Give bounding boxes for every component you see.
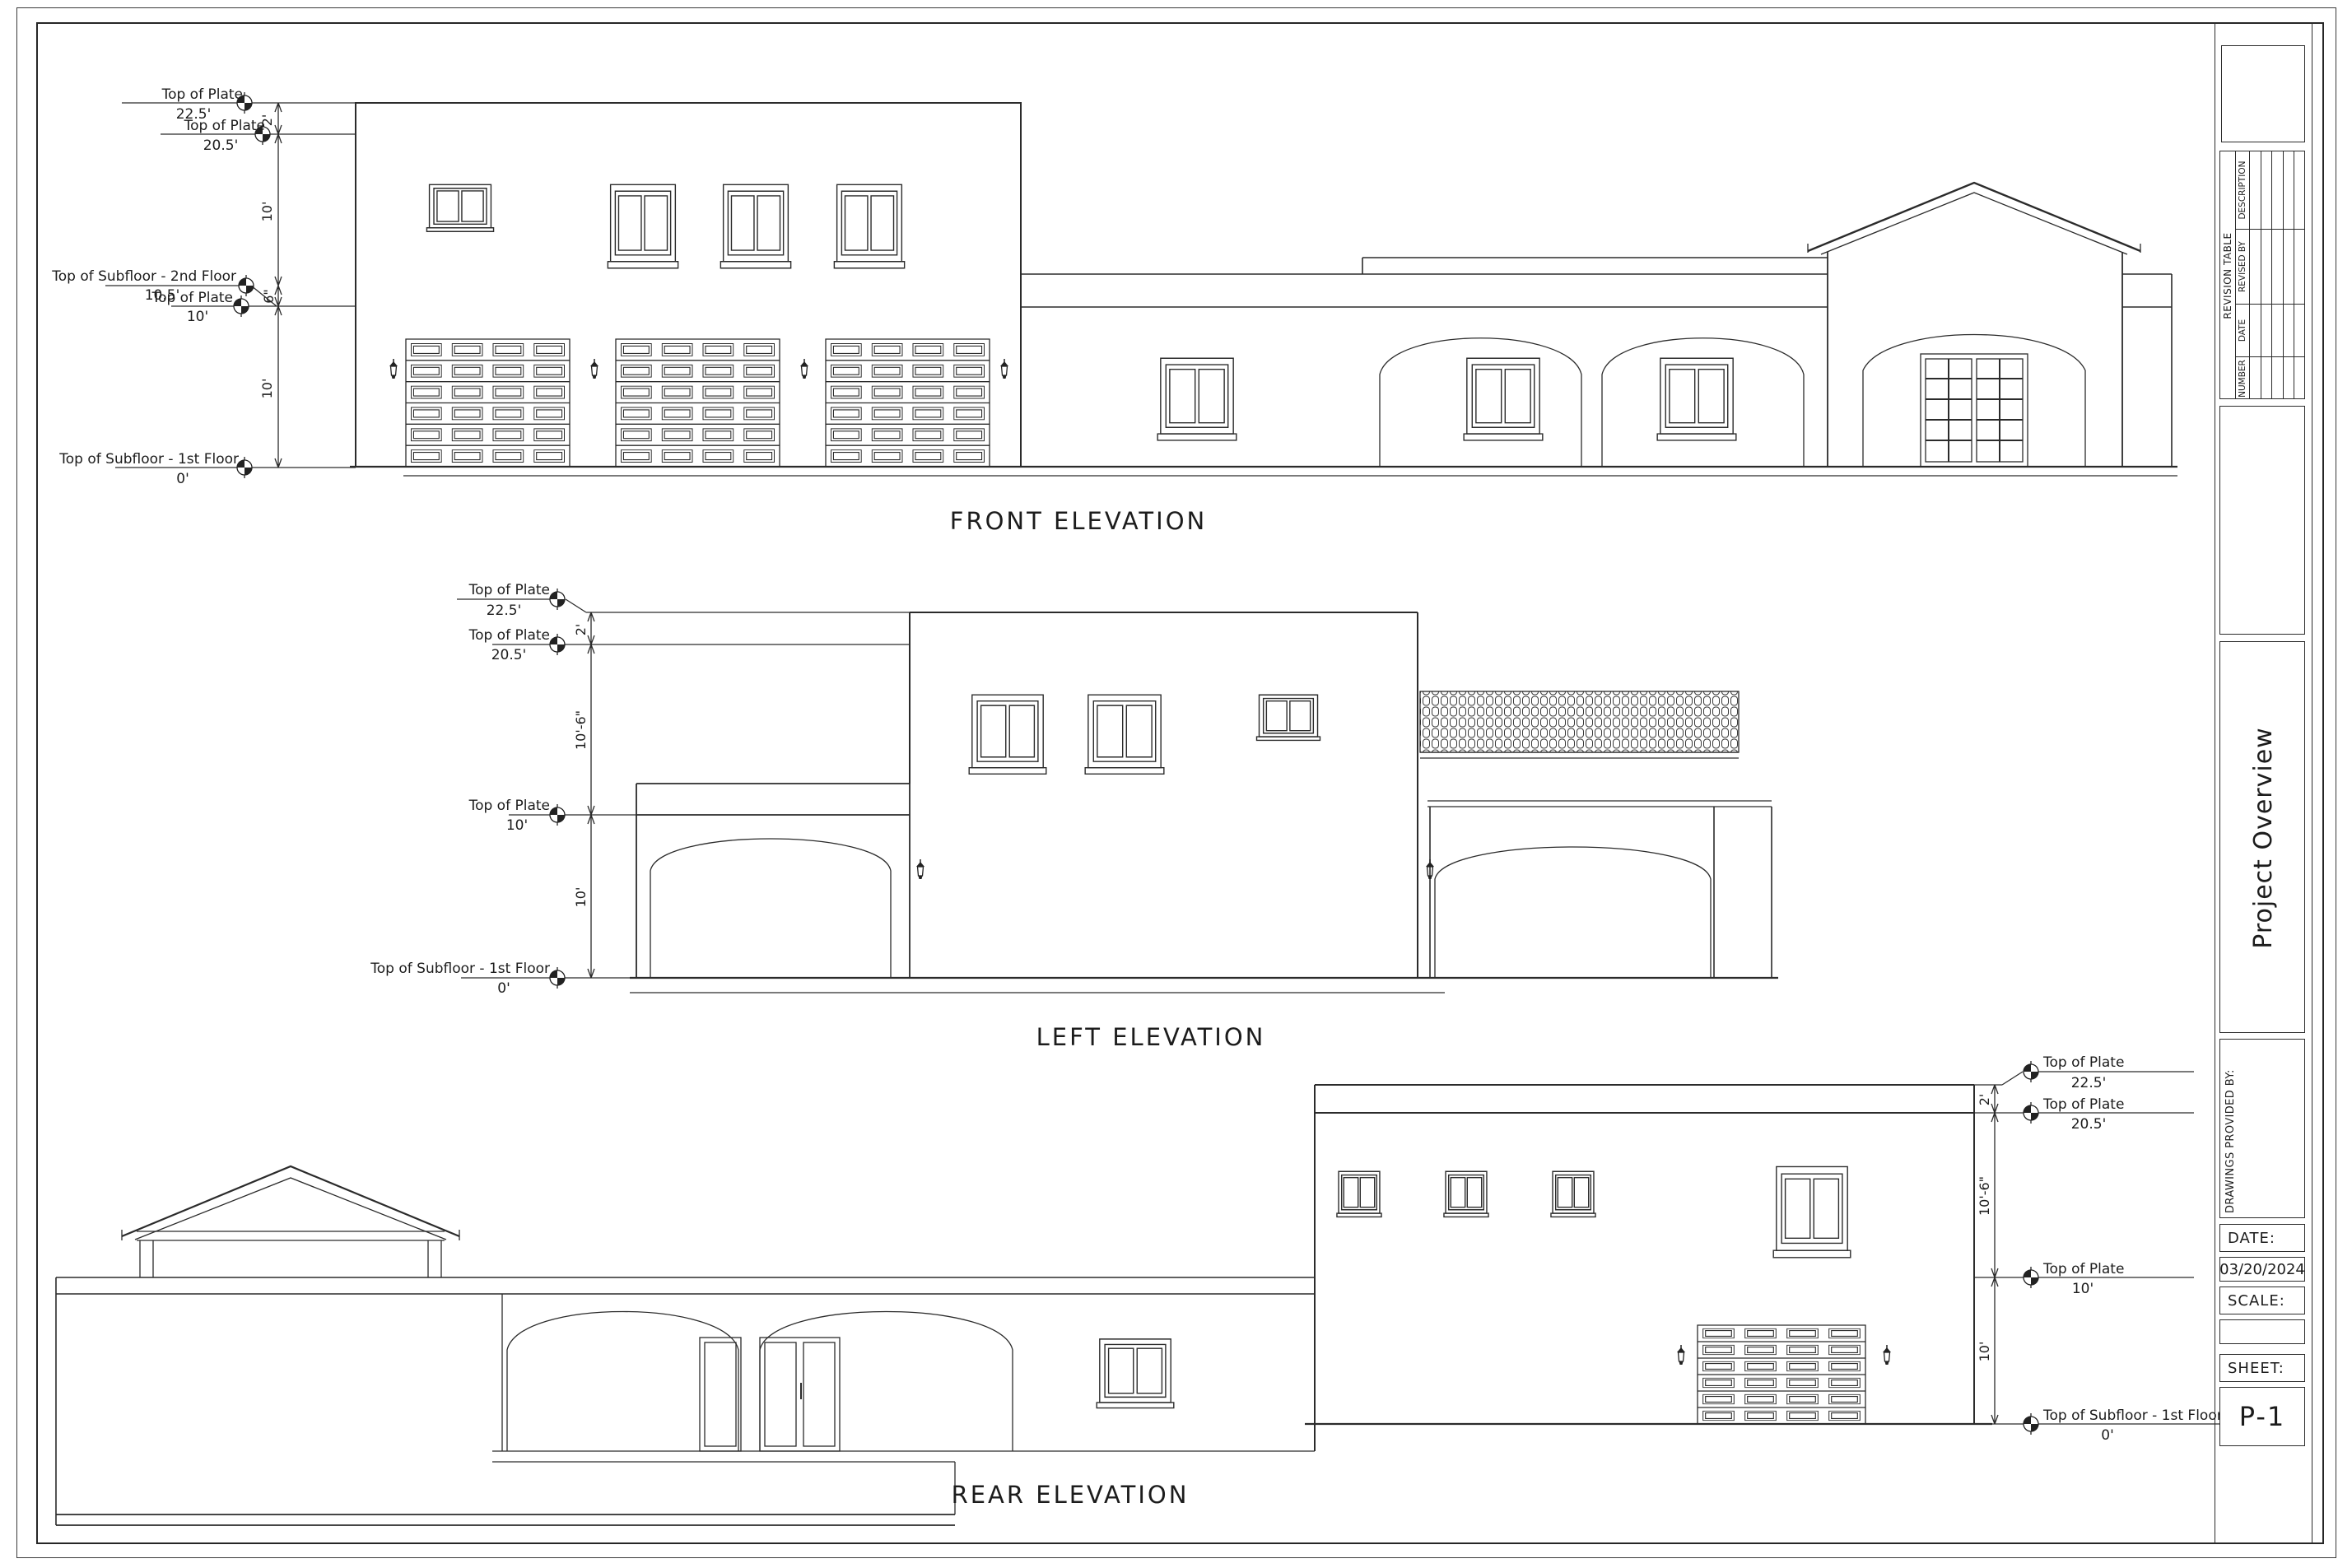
left-elevation-title: LEFT ELEVATION — [1036, 1023, 1266, 1051]
datum-marker-icon — [550, 589, 565, 610]
wall-lantern-icon — [1677, 1345, 1685, 1365]
garage-door — [406, 339, 570, 467]
revision-table-header: NUMBER DATE REVISED BY DESCRIPTION — [2236, 151, 2250, 399]
dim-value: 2' — [1977, 1094, 1992, 1106]
level-name: Top of Plate — [2042, 1096, 2124, 1113]
window — [1085, 695, 1164, 774]
datum-marker-icon — [234, 295, 249, 317]
revision-col-number: NUMBER — [2236, 356, 2249, 399]
level-value: 0' — [176, 471, 189, 487]
datum-marker-icon — [2024, 1061, 2038, 1082]
front-elevation: Top of Plate 22.5' Top of Plate 20.5' To… — [51, 86, 2177, 535]
level-name: Top of Plate — [468, 798, 550, 814]
wall-lantern-icon — [389, 359, 398, 379]
revision-empty-row — [2261, 151, 2273, 399]
title-block-empty-top — [2221, 45, 2305, 142]
level-value: 20.5' — [491, 647, 527, 663]
revision-col-description: DESCRIPTION — [2236, 151, 2249, 229]
level-value: 0' — [2101, 1427, 2114, 1444]
porch-arch — [1435, 847, 1711, 978]
revision-empty-row — [2272, 151, 2284, 399]
dim-value: 10' — [259, 202, 275, 222]
revision-table-title: REVISION TABLE — [2220, 151, 2236, 399]
date-value-box: 03/20/2024 — [2219, 1257, 2305, 1282]
datum-marker-icon — [237, 457, 252, 478]
revision-col-date: DATE — [2236, 304, 2249, 356]
level-lines — [105, 103, 356, 468]
level-value: 20.5' — [2071, 1116, 2107, 1133]
french-doors — [1921, 354, 2028, 467]
sheet-number: P-1 — [2220, 1388, 2304, 1445]
sheet-label: SHEET: — [2220, 1355, 2304, 1381]
datum-marker-icon — [550, 634, 565, 655]
window — [608, 184, 678, 268]
elevation-drawings: Top of Plate 22.5' Top of Plate 20.5' To… — [0, 0, 2352, 1568]
level-value: 10' — [506, 817, 528, 834]
arched-recess — [1602, 338, 1804, 467]
roof-fascia — [1420, 752, 1772, 807]
date-label-box: DATE: — [2219, 1224, 2305, 1252]
window — [1097, 1339, 1174, 1408]
two-story-block — [356, 103, 1021, 467]
level-value: 20.5' — [203, 137, 239, 154]
window — [1337, 1171, 1381, 1217]
datum-marker-icon — [2024, 1413, 2038, 1435]
revision-col-revised-by: REVISED BY — [2236, 229, 2249, 304]
drawings-provided-by-label: DRAWINGS PROVIDED BY: — [2220, 1040, 2237, 1218]
datum-marker-icon — [239, 275, 254, 296]
rear-elevation-title: REAR ELEVATION — [952, 1481, 1190, 1509]
level-name: Top of Plate — [2042, 1261, 2124, 1277]
wall-lantern-icon — [1883, 1345, 1891, 1365]
gable-eave-caps — [1808, 244, 2140, 253]
level-name: Top of Subfloor - 1st Floor — [370, 961, 550, 977]
revision-empty-row — [2284, 151, 2295, 399]
dim-value: 10'-6" — [1977, 1176, 1992, 1216]
porch-structure — [1430, 807, 1772, 978]
patio-door — [760, 1338, 840, 1451]
drawings-provided-by-box: DRAWINGS PROVIDED BY: — [2219, 1039, 2305, 1218]
window — [720, 184, 790, 268]
project-title: Project Overview — [2220, 642, 2305, 1033]
wall-lantern-icon — [590, 359, 598, 379]
dim-value: 10' — [1977, 1342, 1992, 1362]
level-value: 22.5' — [487, 603, 522, 619]
date-label: DATE: — [2220, 1225, 2304, 1251]
dimension-line — [275, 103, 282, 468]
level-name: Top of Plate — [2042, 1054, 2124, 1071]
rear-block — [1315, 1085, 1974, 1451]
level-name: Top of Plate — [468, 627, 550, 644]
garage-door — [1698, 1325, 1865, 1424]
window — [1773, 1166, 1851, 1257]
gable-roof-inner — [135, 1178, 446, 1240]
wall-lantern-icon — [1000, 359, 1008, 379]
window — [834, 184, 904, 268]
level-name: Top of Plate — [184, 118, 265, 134]
datum-marker-icon — [550, 804, 565, 826]
sheet-label-box: SHEET: — [2219, 1354, 2305, 1382]
garage-door — [616, 339, 780, 467]
dim-value: 10' — [573, 887, 589, 908]
arched-opening — [760, 1312, 1013, 1452]
dimension-line — [588, 612, 594, 978]
drawing-sheet: Top of Plate 22.5' Top of Plate 20.5' To… — [0, 0, 2352, 1568]
tile-roof — [1420, 691, 1739, 752]
level-name: Top of Subfloor - 2nd Floor — [51, 268, 236, 285]
dimension-line — [1991, 1085, 1998, 1424]
level-value: 22.5' — [2071, 1075, 2107, 1091]
garage-door — [826, 339, 990, 467]
gable-roof — [122, 1166, 459, 1236]
level-name: Top of Subfloor - 1st Floor — [2042, 1407, 2223, 1424]
patio-door — [700, 1338, 741, 1451]
window — [1257, 695, 1320, 740]
level-value: 10' — [187, 309, 208, 325]
datum-marker-icon — [550, 967, 565, 989]
dim-value: 2' — [573, 624, 589, 636]
window — [1551, 1171, 1595, 1217]
datum-marker-icon — [2024, 1102, 2038, 1124]
garage-arch — [650, 839, 891, 978]
rear-elevation: Top of Plate 22.5' Top of Plate 20.5' To… — [56, 1054, 2223, 1525]
right-wall — [2122, 274, 2172, 467]
gable-roof-inner — [1821, 193, 2127, 254]
middle-ground — [492, 1451, 1315, 1514]
gable-posts — [140, 1240, 441, 1277]
middle-parapet — [1021, 258, 1828, 307]
arched-recess — [1380, 338, 1581, 467]
scale-value-box — [2219, 1319, 2305, 1344]
revision-table: REVISION TABLE NUMBER DATE REVISED BY DE… — [2219, 151, 2305, 399]
left-elevation: Top of Plate 22.5' Top of Plate 20.5' To… — [370, 582, 1778, 1051]
dim-value: 10' — [259, 379, 275, 399]
window — [1657, 358, 1736, 440]
level-name: Top of Plate — [151, 290, 233, 306]
arched-opening — [507, 1312, 738, 1452]
window — [426, 184, 493, 231]
garage-volume — [636, 784, 910, 978]
dim-value: 2' — [259, 114, 275, 127]
window — [1157, 358, 1237, 440]
title-block-empty-middle — [2219, 406, 2305, 635]
window — [1464, 358, 1543, 440]
level-name: Top of Subfloor - 1st Floor — [58, 451, 239, 468]
main-volume — [910, 612, 1418, 978]
date-value: 03/20/2024 — [2220, 1258, 2304, 1281]
lower-ground — [56, 1514, 955, 1525]
dim-value: 6" — [261, 289, 277, 304]
window — [1444, 1171, 1488, 1217]
datum-marker-icon — [2024, 1267, 2038, 1288]
level-value: 0' — [497, 980, 510, 997]
scale-label-box: SCALE: — [2219, 1287, 2305, 1314]
front-elevation-title: FRONT ELEVATION — [950, 507, 1207, 535]
scale-label: SCALE: — [2220, 1287, 2304, 1314]
revision-empty-row — [2250, 151, 2261, 399]
wall-lantern-icon — [916, 859, 924, 879]
gable-beams — [137, 1231, 445, 1240]
window — [969, 695, 1046, 774]
wall-lantern-icon — [800, 359, 808, 379]
scale-value — [2220, 1320, 2304, 1343]
revision-empty-row — [2294, 151, 2305, 399]
level-name: Top of Plate — [468, 582, 550, 598]
level-name: Top of Plate — [161, 86, 243, 103]
sheet-value-box: P-1 — [2219, 1387, 2305, 1446]
level-value: 10' — [2072, 1281, 2094, 1297]
project-title-box: Project Overview — [2219, 641, 2305, 1033]
dim-value: 10'-6" — [573, 710, 589, 750]
